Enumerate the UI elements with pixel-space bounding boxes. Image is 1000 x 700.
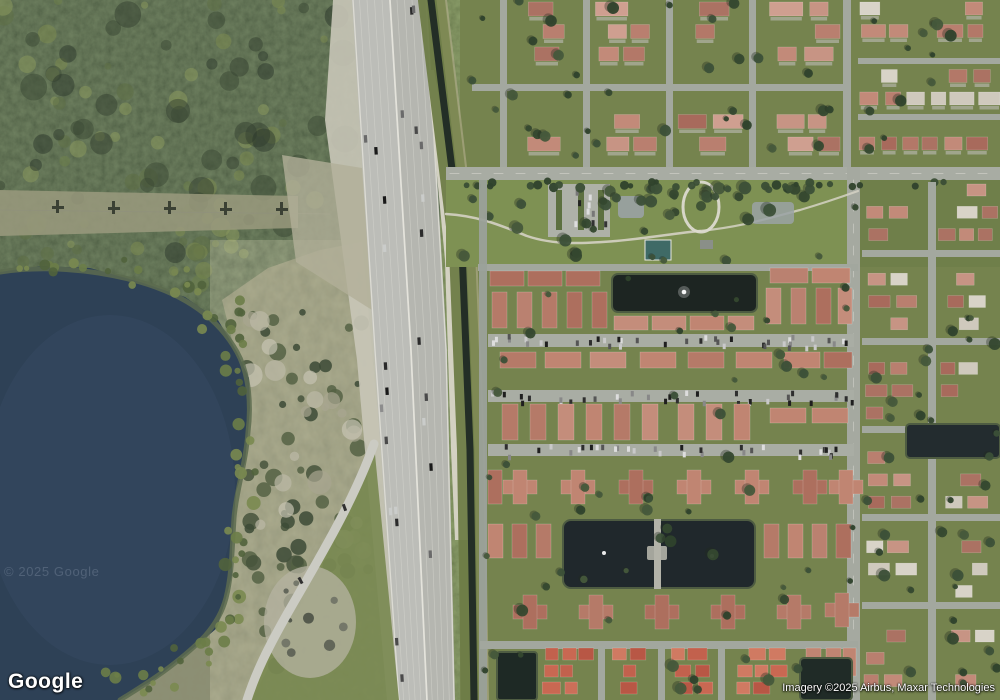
condos-mid-row1	[500, 352, 852, 368]
imagery-attribution: Imagery ©2025 Airbus, Maxar Technologies	[782, 682, 995, 694]
park-oval-tree	[696, 201, 706, 211]
google-logo[interactable]: Google	[8, 670, 83, 694]
west-frontage-road	[479, 180, 487, 700]
parking-band-1	[488, 334, 854, 347]
satellite-map[interactable]: © 2025 Google Google Imagery ©2025 Airbu…	[0, 0, 1000, 700]
map-watermark: © 2025 Google	[4, 564, 99, 579]
pond-bridge-platform	[647, 546, 667, 560]
satellite-imagery-canvas	[0, 0, 1000, 700]
parking-band-3	[488, 444, 854, 456]
pond-bottom-left	[497, 652, 537, 700]
fountain-2	[602, 551, 606, 555]
divider-road-lower	[480, 641, 858, 649]
park-pavilion	[700, 240, 713, 249]
fountain-1	[682, 290, 687, 295]
